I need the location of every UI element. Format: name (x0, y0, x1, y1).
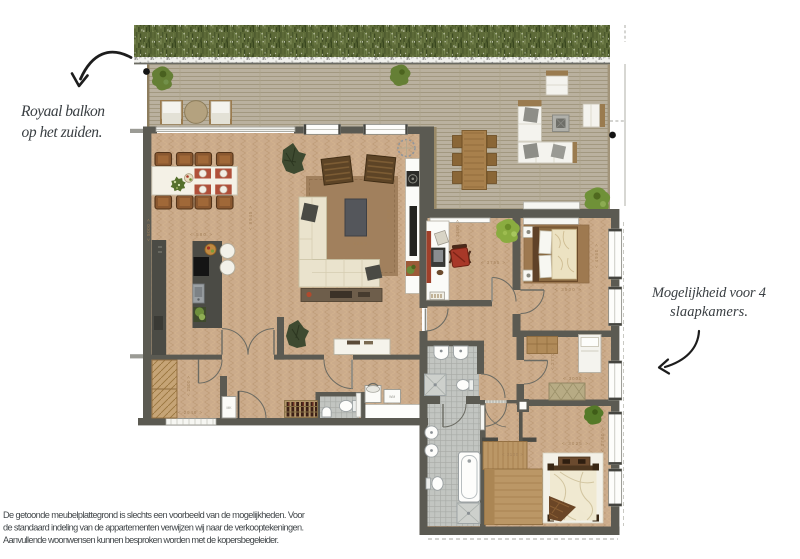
svg-text:< 3480 >: < 3480 > (455, 220, 460, 242)
svg-text:< 580 >: < 580 > (190, 232, 212, 237)
svg-text:< 3755 >: < 3755 > (481, 260, 505, 265)
svg-text:< 3000 >: < 3000 > (563, 376, 587, 381)
svg-text:< 2500 >: < 2500 > (186, 376, 191, 396)
svg-text:Aanvullende woonwensen kunnen: Aanvullende woonwensen kunnen besproken … (3, 535, 279, 545)
svg-text:< 5650 >: < 5650 > (347, 241, 373, 246)
svg-text:< 4950 >: < 4950 > (594, 244, 599, 268)
svg-text:< 2100 >: < 2100 > (502, 452, 523, 457)
svg-text:op het zuiden.: op het zuiden. (22, 124, 103, 141)
svg-text:< 2770 >: < 2770 > (550, 348, 555, 370)
svg-text:< 5000 >: < 5000 > (146, 219, 151, 241)
svg-text:< 3500 >: < 3500 > (555, 287, 581, 292)
svg-text:slaapkamers.: slaapkamers. (670, 304, 748, 320)
svg-text:< 3760 >: < 3760 > (600, 428, 605, 452)
svg-text:de standaard indeling van de a: de standaard indeling van de appartement… (3, 523, 304, 533)
svg-text:Royaal balkon: Royaal balkon (20, 103, 105, 120)
svg-text:< 8945 >: < 8945 > (248, 206, 253, 230)
svg-text:< 3025 >: < 3025 > (562, 441, 588, 446)
svg-text:WM: WM (389, 395, 395, 399)
svg-text:Mogelijkheid voor 4: Mogelijkheid voor 4 (651, 285, 766, 301)
svg-text:De getoonde meubelplattegrond: De getoonde meubelplattegrond is slechts… (3, 510, 305, 520)
svg-text:< 5650 >: < 5650 > (386, 204, 391, 228)
svg-text:< 2940 >: < 2940 > (178, 410, 202, 415)
svg-text:MK: MK (226, 406, 232, 410)
